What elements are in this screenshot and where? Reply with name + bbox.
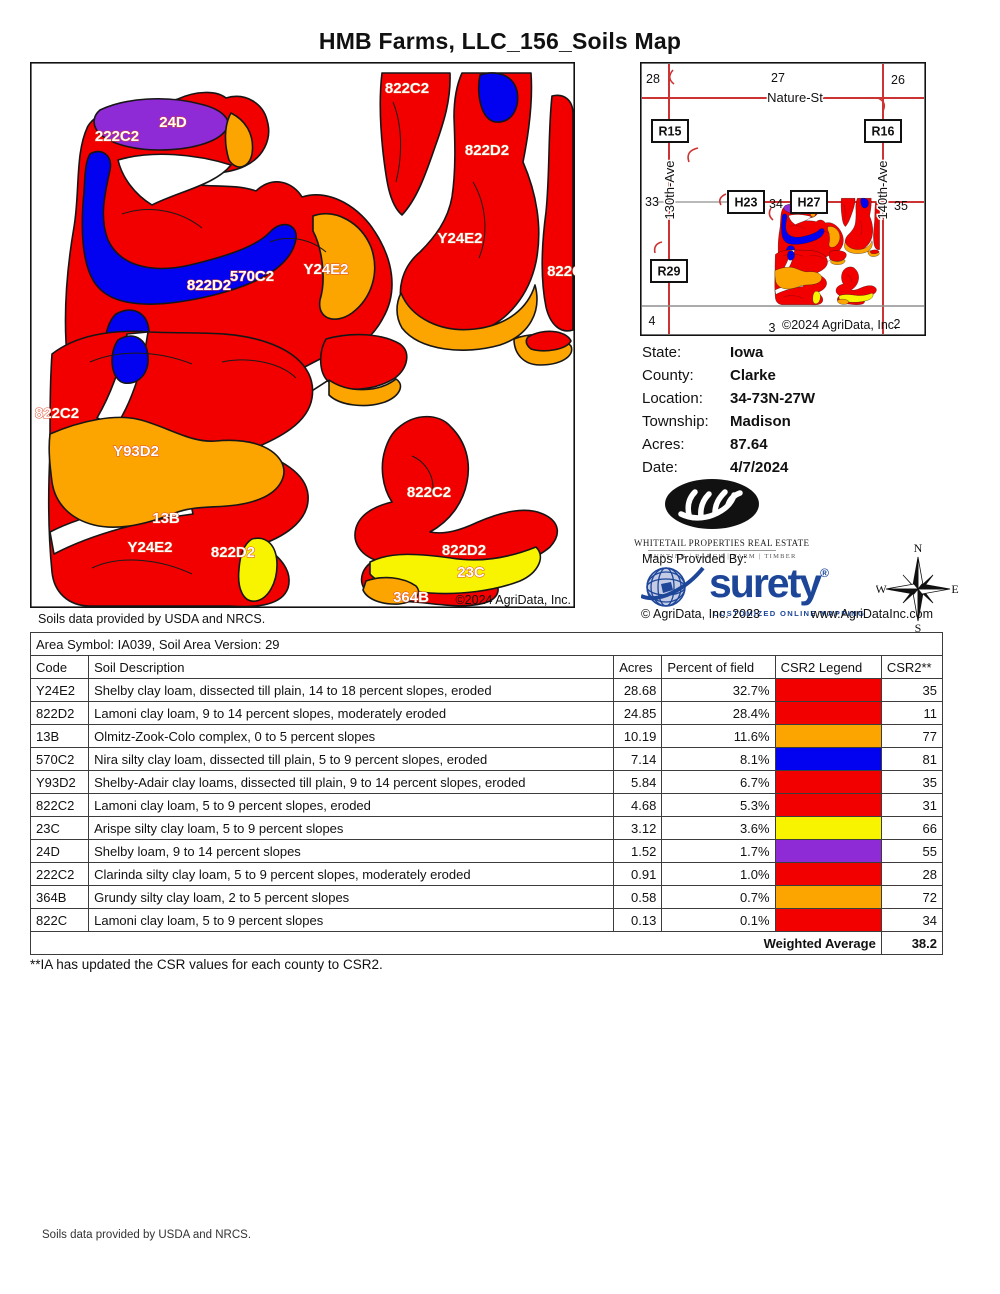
cell-acres: 4.68 — [614, 794, 662, 817]
soil-row-822c2: 822C2Lamoni clay loam, 5 to 9 percent sl… — [31, 794, 943, 817]
cell-percent: 6.7% — [662, 771, 775, 794]
cell-acres: 10.19 — [614, 725, 662, 748]
info-label-county: County: — [642, 367, 730, 384]
cell-csr2: 35 — [881, 771, 942, 794]
info-label-township: Township: — [642, 413, 730, 430]
table-header-row: Code Soil Description Acres Percent of f… — [31, 656, 943, 679]
compass-e: E — [951, 582, 958, 596]
info-value-township: Madison — [730, 413, 791, 430]
cell-csr2: 35 — [881, 679, 942, 702]
property-info: State:IowaCounty:ClarkeLocation:34-73N-2… — [642, 341, 932, 479]
soil-row-23c: 23CArispe silty clay loam, 5 to 9 percen… — [31, 817, 943, 840]
soil-label-822d2: 822D2 — [442, 542, 486, 559]
soil-label-822d2: 822D2 — [465, 142, 509, 159]
map-caption: Soils data provided by USDA and NRCS. — [38, 612, 265, 626]
cell-description: Clarinda silty clay loam, 5 to 9 percent… — [89, 863, 614, 886]
cell-code: Y93D2 — [31, 771, 89, 794]
csr2-footnote: **IA has updated the CSR values for each… — [30, 957, 383, 972]
soil-label-222c2: 222C2 — [95, 128, 139, 145]
cell-acres: 3.12 — [614, 817, 662, 840]
section-number-28: 28 — [646, 72, 660, 86]
section-number-4: 4 — [649, 314, 656, 328]
route-marker-r16: R16 — [872, 125, 895, 139]
col-header-percent: Percent of field — [662, 656, 775, 679]
csr2-legend-swatch — [775, 794, 881, 817]
csr2-legend-swatch — [775, 817, 881, 840]
section-number-33: 33 — [645, 195, 659, 209]
csr2-legend-swatch — [775, 771, 881, 794]
surety-globe-icon — [641, 566, 705, 608]
cell-percent: 5.3% — [662, 794, 775, 817]
table-area-row: Area Symbol: IA039, Soil Area Version: 2… — [31, 633, 943, 656]
csr2-legend-swatch — [775, 886, 881, 909]
csr2-legend-swatch — [775, 702, 881, 725]
cell-description: Shelby loam, 9 to 14 percent slopes — [89, 840, 614, 863]
whitetail-antler-icon — [662, 477, 762, 531]
surety-wordmark: surety — [709, 560, 820, 606]
cell-acres: 7.14 — [614, 748, 662, 771]
road-label-130th-ave: 130th-Ave — [662, 160, 677, 219]
cell-acres: 1.52 — [614, 840, 662, 863]
cell-csr2: 11 — [881, 702, 942, 725]
csr2-legend-swatch — [775, 748, 881, 771]
compass-n: N — [914, 541, 923, 555]
cell-csr2: 81 — [881, 748, 942, 771]
csr2-legend-swatch — [775, 725, 881, 748]
soil-row-222c2: 222C2Clarinda silty clay loam, 5 to 9 pe… — [31, 863, 943, 886]
cell-code: 13B — [31, 725, 89, 748]
section-number-35: 35 — [894, 199, 908, 213]
cell-percent: 28.4% — [662, 702, 775, 725]
cell-csr2: 55 — [881, 840, 942, 863]
section-number-27: 27 — [771, 71, 785, 85]
info-row-county: County:Clarke — [642, 364, 932, 387]
cell-code: 822C — [31, 909, 89, 932]
col-header-csr2: CSR2** — [881, 656, 942, 679]
cell-description: Arispe silty clay loam, 5 to 9 percent s… — [89, 817, 614, 840]
locator-copyright: ©2024 AgriData, Inc. — [782, 318, 898, 332]
weighted-average-row: Weighted Average 38.2 — [31, 932, 943, 955]
soil-label-y93d2: Y93D2 — [113, 443, 159, 460]
soil-label-822c2: 822C2 — [407, 484, 451, 501]
road-label-nature-st: Nature-St — [767, 90, 823, 105]
cell-csr2: 77 — [881, 725, 942, 748]
route-marker-h27: H27 — [798, 196, 821, 210]
cell-percent: 0.1% — [662, 909, 775, 932]
soil-label-570c2: 570C2 — [230, 268, 274, 285]
soil-label-822d2: 822D2 — [187, 277, 231, 294]
soil-table: Area Symbol: IA039, Soil Area Version: 2… — [30, 632, 943, 955]
cell-acres: 0.58 — [614, 886, 662, 909]
cell-acres: 5.84 — [614, 771, 662, 794]
soil-label-23c: 23C — [457, 564, 485, 581]
cell-code: 822C2 — [31, 794, 89, 817]
info-label-date: Date: — [642, 459, 730, 476]
cell-percent: 32.7% — [662, 679, 775, 702]
cell-code: Y24E2 — [31, 679, 89, 702]
info-label-acres: Acres: — [642, 436, 730, 453]
col-header-acres: Acres — [614, 656, 662, 679]
soil-label-y24e2: Y24E2 — [127, 539, 172, 556]
cell-description: Olmitz-Zook-Colo complex, 0 to 5 percent… — [89, 725, 614, 748]
cell-csr2: 66 — [881, 817, 942, 840]
weighted-average-label: Weighted Average — [31, 932, 882, 955]
cell-percent: 1.0% — [662, 863, 775, 886]
cell-description: Grundy silty clay loam, 2 to 5 percent s… — [89, 886, 614, 909]
info-row-date: Date:4/7/2024 — [642, 456, 932, 479]
info-row-state: State:Iowa — [642, 341, 932, 364]
cell-code: 24D — [31, 840, 89, 863]
route-marker-h23: H23 — [735, 196, 758, 210]
soil-label-364b: 364B — [393, 589, 429, 606]
col-header-csr2-legend: CSR2 Legend — [775, 656, 881, 679]
cell-percent: 8.1% — [662, 748, 775, 771]
soil-row-y24e2: Y24E2Shelby clay loam, dissected till pl… — [31, 679, 943, 702]
soil-row-13b: 13BOlmitz-Zook-Colo complex, 0 to 5 perc… — [31, 725, 943, 748]
soil-label-y24e2: Y24E2 — [303, 261, 348, 278]
col-header-description: Soil Description — [89, 656, 614, 679]
soil-label-13b: 13B — [152, 510, 180, 527]
compass-star — [886, 557, 950, 621]
soil-row-24d: 24DShelby loam, 9 to 14 percent slopes1.… — [31, 840, 943, 863]
cell-percent: 11.6% — [662, 725, 775, 748]
soil-row-822c: 822CLamoni clay loam, 5 to 9 percent slo… — [31, 909, 943, 932]
whitetail-logo: WHITETAIL PROPERTIES REAL ESTATE HUNTING… — [634, 477, 790, 560]
cell-description: Nira silty clay loam, dissected till pla… — [89, 748, 614, 771]
cell-acres: 0.13 — [614, 909, 662, 932]
info-row-acres: Acres:87.64 — [642, 433, 932, 456]
cell-percent: 0.7% — [662, 886, 775, 909]
surety-registered-mark: ® — [820, 566, 829, 580]
soil-label-y24e2: Y24E2 — [437, 230, 482, 247]
info-row-township: Township:Madison — [642, 410, 932, 433]
cell-description: Shelby-Adair clay loams, dissected till … — [89, 771, 614, 794]
locator-map: R15R16H23H27R29 282726333435432 Nature-S… — [640, 62, 926, 336]
area-symbol: Area Symbol: IA039, Soil Area Version: 2… — [31, 633, 943, 656]
cell-csr2: 28 — [881, 863, 942, 886]
info-value-acres: 87.64 — [730, 436, 768, 453]
page-footer: Soils data provided by USDA and NRCS. — [42, 1229, 251, 1241]
page-title: HMB Farms, LLC_156_Soils Map — [0, 28, 1000, 55]
info-value-date: 4/7/2024 — [730, 459, 788, 476]
soil-row-y93d2: Y93D2Shelby-Adair clay loams, dissected … — [31, 771, 943, 794]
cell-code: 23C — [31, 817, 89, 840]
cell-acres: 0.91 — [614, 863, 662, 886]
soil-label-822d2: 822D2 — [211, 544, 255, 561]
soil-label-822c: 822C — [547, 263, 575, 280]
info-label-location: Location: — [642, 390, 730, 407]
agridata-copyright: © AgriData, Inc. 2023 — [641, 607, 760, 621]
section-number-3: 3 — [769, 321, 776, 335]
cell-code: 222C2 — [31, 863, 89, 886]
section-number-26: 26 — [891, 73, 905, 87]
cell-code: 570C2 — [31, 748, 89, 771]
cell-code: 364B — [31, 886, 89, 909]
cell-csr2: 34 — [881, 909, 942, 932]
info-row-location: Location:34-73N-27W — [642, 387, 932, 410]
info-label-state: State: — [642, 344, 730, 361]
compass-w: W — [876, 582, 887, 596]
cell-description: Lamoni clay loam, 5 to 9 percent slopes,… — [89, 794, 614, 817]
cell-description: Lamoni clay loam, 9 to 14 percent slopes… — [89, 702, 614, 725]
soil-row-822d2: 822D2Lamoni clay loam, 9 to 14 percent s… — [31, 702, 943, 725]
section-number-34: 34 — [769, 197, 783, 211]
cell-acres: 28.68 — [614, 679, 662, 702]
map-copyright: ©2024 AgriData, Inc. — [455, 593, 571, 607]
compass-rose: N S W E — [876, 541, 960, 633]
weighted-average-value: 38.2 — [881, 932, 942, 955]
info-value-county: Clarke — [730, 367, 776, 384]
csr2-legend-swatch — [775, 909, 881, 932]
soil-label-24d: 24D — [159, 114, 187, 131]
cell-description: Lamoni clay loam, 5 to 9 percent slopes — [89, 909, 614, 932]
whitetail-name: WHITETAIL PROPERTIES REAL ESTATE — [634, 538, 790, 548]
cell-percent: 3.6% — [662, 817, 775, 840]
route-marker-r29: R29 — [658, 265, 681, 279]
col-header-code: Code — [31, 656, 89, 679]
cell-csr2: 31 — [881, 794, 942, 817]
cell-csr2: 72 — [881, 886, 942, 909]
route-marker-r15: R15 — [659, 125, 682, 139]
soil-row-364b: 364BGrundy silty clay loam, 2 to 5 perce… — [31, 886, 943, 909]
csr2-legend-swatch — [775, 863, 881, 886]
cell-code: 822D2 — [31, 702, 89, 725]
info-value-location: 34-73N-27W — [730, 390, 815, 407]
soils-map: 822C224D222C2822D2Y24E2Y24E2570C2822D282… — [30, 62, 575, 608]
soil-label-822c2: 822C2 — [385, 80, 429, 97]
csr2-legend-swatch — [775, 679, 881, 702]
csr2-legend-swatch — [775, 840, 881, 863]
cell-percent: 1.7% — [662, 840, 775, 863]
soil-label-822c2: 822C2 — [35, 405, 79, 422]
soil-row-570c2: 570C2Nira silty clay loam, dissected til… — [31, 748, 943, 771]
cell-description: Shelby clay loam, dissected till plain, … — [89, 679, 614, 702]
road-label-140th-ave: 140th-Ave — [875, 160, 890, 219]
info-value-state: Iowa — [730, 344, 763, 361]
cell-acres: 24.85 — [614, 702, 662, 725]
